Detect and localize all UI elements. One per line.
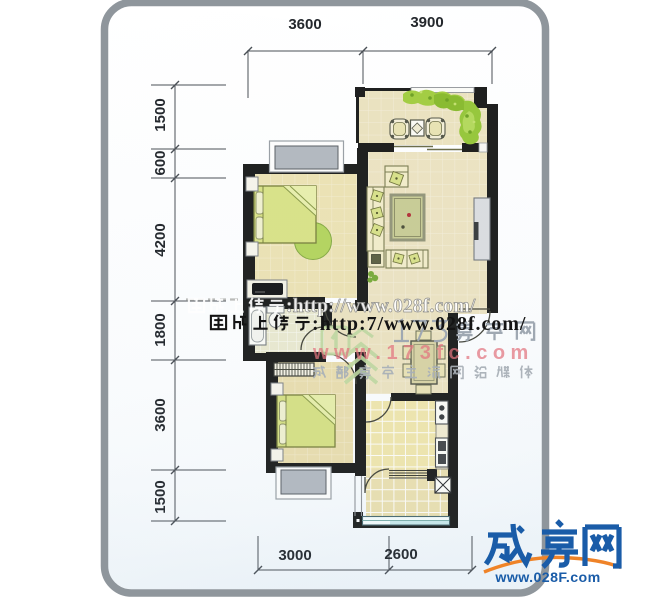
svg-text::http:7/www.028f.com/: :http:7/www.028f.com/ bbox=[312, 313, 526, 335]
svg-text:www.028F.com: www.028F.com bbox=[494, 570, 600, 586]
svg-text:www.173fc.com: www.173fc.com bbox=[312, 342, 534, 364]
